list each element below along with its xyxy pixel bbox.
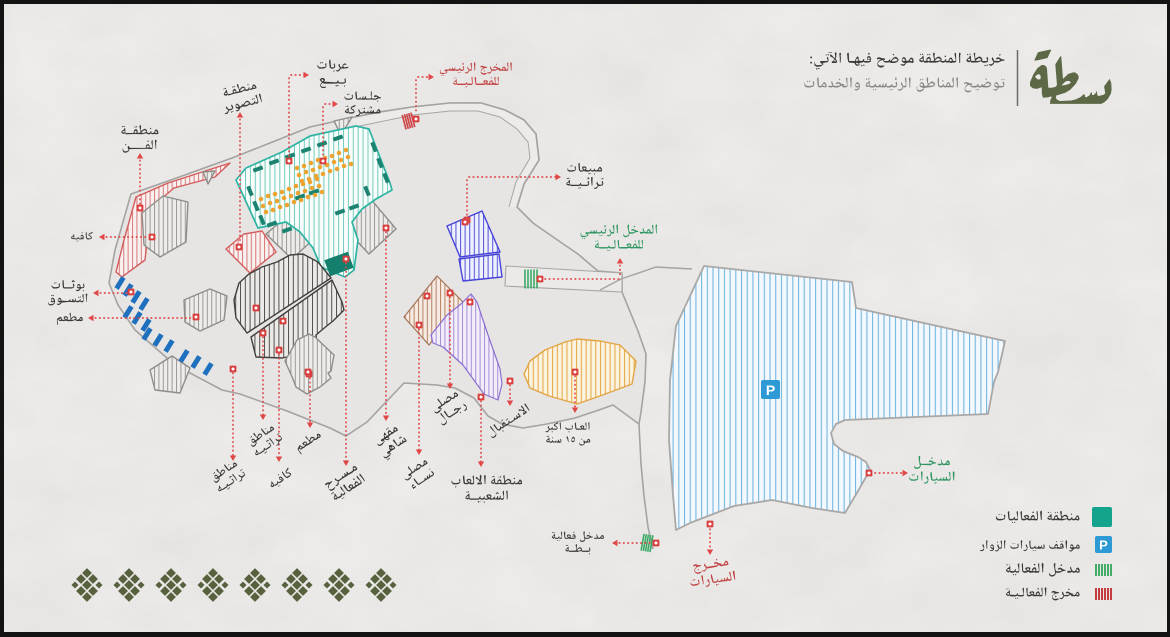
svg-text:P: P <box>1099 538 1108 553</box>
svg-text:P: P <box>766 382 775 398</box>
